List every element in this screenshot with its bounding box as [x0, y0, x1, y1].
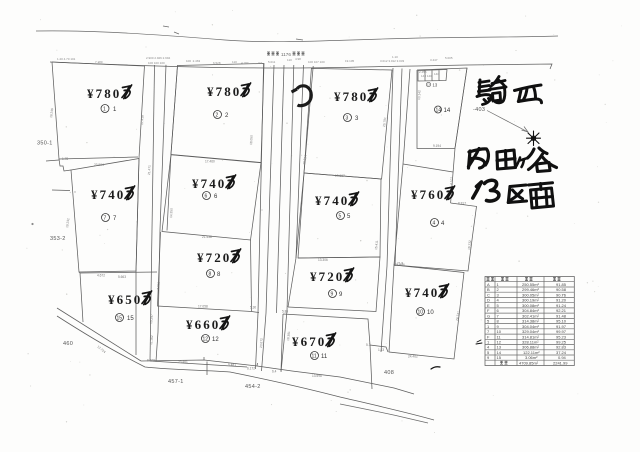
svg-text:13: 13 [433, 82, 438, 87]
svg-text:¥660: ¥660 [186, 317, 220, 332]
svg-text:17.460: 17.460 [205, 160, 215, 164]
svg-text:4.98: 4.98 [295, 57, 301, 61]
svg-text:91.20: 91.20 [556, 298, 567, 303]
svg-text:19.105: 19.105 [345, 59, 355, 63]
svg-text:13.306: 13.306 [318, 258, 328, 262]
svg-text:6: 6 [214, 194, 218, 200]
svg-text:12.724: 12.724 [96, 345, 106, 354]
svg-text:91.48: 91.48 [556, 313, 567, 318]
svg-text:9.194: 9.194 [433, 144, 441, 148]
svg-text:5.1: 5.1 [366, 343, 371, 347]
svg-text:19.594: 19.594 [302, 155, 308, 166]
svg-text:110: 110 [287, 58, 292, 62]
svg-text:5.005: 5.005 [445, 56, 453, 60]
svg-text:3.06m²: 3.06m² [525, 355, 538, 360]
svg-text:350-1: 350-1 [37, 141, 53, 147]
svg-text:4709.85m²: 4709.85m² [519, 361, 539, 366]
svg-text:4.107: 4.107 [449, 176, 454, 185]
svg-text:17.418: 17.418 [140, 115, 145, 125]
svg-text:4: 4 [497, 298, 500, 303]
svg-text:¥780: ¥780 [334, 89, 368, 104]
svg-text:4.493: 4.493 [156, 282, 161, 291]
svg-text:15: 15 [117, 316, 123, 322]
svg-text:92.83: 92.83 [556, 345, 567, 350]
svg-text:23.904: 23.904 [94, 163, 104, 167]
svg-text:13.142: 13.142 [417, 90, 422, 100]
svg-text:18.381: 18.381 [286, 331, 291, 341]
svg-text:¥740: ¥740 [315, 193, 349, 208]
svg-text:4: 4 [487, 345, 490, 350]
svg-text:18.246: 18.246 [49, 108, 54, 118]
svg-text:7: 7 [104, 216, 107, 222]
svg-text:15.411: 15.411 [374, 240, 379, 250]
svg-text:1: 1 [113, 107, 117, 113]
svg-text:14: 14 [436, 108, 442, 114]
svg-text:12: 12 [203, 337, 209, 343]
svg-text:6.528: 6.528 [213, 61, 221, 65]
svg-text:408: 408 [384, 370, 394, 376]
svg-text:9: 9 [331, 292, 334, 298]
svg-text:19.232: 19.232 [467, 240, 472, 250]
svg-text:1: 1 [103, 107, 106, 113]
svg-text:13: 13 [497, 345, 502, 350]
svg-text:¥760: ¥760 [411, 187, 445, 202]
svg-text:¥740: ¥740 [91, 187, 125, 202]
svg-text:13.247: 13.247 [149, 314, 154, 324]
svg-text:12: 12 [212, 337, 219, 343]
svg-text:11: 11 [321, 354, 328, 360]
svg-text:300.19m²: 300.19m² [522, 298, 540, 303]
svg-text:454-2: 454-2 [245, 384, 261, 390]
svg-text:23.672: 23.672 [259, 338, 264, 348]
svg-text:302.41m²: 302.41m² [522, 313, 540, 318]
svg-text:17.058: 17.058 [198, 305, 208, 309]
svg-text:306.88m²: 306.88m² [522, 345, 540, 350]
svg-text:329.04m²: 329.04m² [522, 329, 540, 334]
svg-text:1.20 4.70 101: 1.20 4.70 101 [57, 57, 76, 61]
svg-text:4: 4 [433, 221, 436, 227]
svg-text:9.569: 9.569 [147, 359, 155, 363]
svg-text:14: 14 [444, 108, 451, 114]
svg-text:3: 3 [355, 116, 359, 122]
svg-text:-403: -403 [473, 107, 485, 113]
svg-text:¥740: ¥740 [192, 176, 226, 191]
svg-text:¥720: ¥720 [310, 269, 344, 284]
svg-text:2: 2 [225, 113, 229, 119]
svg-text:21.438: 21.438 [202, 235, 212, 239]
svg-text:5: 5 [339, 214, 342, 220]
svg-text:D: D [487, 298, 490, 303]
svg-text:4.672: 4.672 [97, 274, 105, 278]
svg-text:2: 2 [216, 113, 219, 119]
svg-text:6.172: 6.172 [247, 367, 255, 371]
svg-text:5: 5 [347, 214, 351, 220]
svg-text:3.012 3.012 3.033: 3.012 3.012 3.033 [380, 59, 405, 63]
svg-text:¥740: ¥740 [405, 285, 439, 300]
svg-text:8.817: 8.817 [458, 202, 466, 206]
svg-text:2.900 2.926 2.994: 2.900 2.926 2.994 [146, 56, 171, 60]
svg-text:18.050: 18.050 [249, 135, 254, 145]
svg-text:¥780: ¥780 [207, 84, 241, 99]
svg-text:7: 7 [497, 313, 500, 318]
svg-text:100 107 100: 100 107 100 [308, 60, 325, 64]
svg-text:21.8: 21.8 [397, 262, 403, 266]
svg-text:5.011: 5.011 [268, 60, 276, 64]
svg-text:6: 6 [205, 194, 208, 200]
svg-text:8: 8 [209, 272, 212, 278]
svg-text:11: 11 [312, 354, 317, 360]
svg-text:10: 10 [497, 329, 502, 334]
svg-text:14.350: 14.350 [169, 208, 174, 218]
svg-text:¥780: ¥780 [87, 86, 121, 101]
svg-text:353-2: 353-2 [50, 236, 66, 242]
svg-text:140: 140 [434, 72, 439, 76]
svg-text:9: 9 [487, 355, 490, 360]
svg-text:19.232: 19.232 [65, 218, 70, 228]
svg-text:2241.99: 2241.99 [553, 361, 568, 366]
svg-text:24.462: 24.462 [408, 355, 418, 359]
svg-text:5.86: 5.86 [282, 310, 288, 314]
svg-text:99.97: 99.97 [556, 329, 567, 334]
svg-text:¥720: ¥720 [197, 250, 231, 265]
svg-text:13.598: 13.598 [312, 374, 322, 378]
svg-text:15: 15 [497, 355, 502, 360]
svg-text:10: 10 [427, 310, 434, 316]
svg-text:26.741: 26.741 [455, 311, 461, 322]
svg-text:457-1: 457-1 [168, 379, 184, 385]
svg-text:4: 4 [441, 221, 445, 227]
svg-text:G: G [487, 313, 490, 318]
svg-text:5.481: 5.481 [228, 363, 236, 367]
svg-text:¥670: ¥670 [292, 334, 326, 349]
svg-text:8: 8 [217, 272, 221, 278]
svg-text:5.30: 5.30 [250, 306, 256, 310]
svg-text:3: 3 [346, 116, 349, 122]
svg-text:110: 110 [232, 60, 237, 64]
svg-text:7: 7 [487, 329, 490, 334]
svg-text:140 140: 140 140 [421, 74, 432, 78]
svg-text:11.162: 11.162 [149, 335, 154, 345]
svg-text:0.94: 0.94 [558, 355, 567, 360]
svg-text:460: 460 [63, 341, 73, 347]
svg-text:1176: 1176 [281, 52, 291, 57]
svg-text:7: 7 [113, 216, 117, 222]
svg-text:1.10: 1.10 [392, 55, 398, 59]
svg-text:21.471: 21.471 [147, 165, 152, 175]
svg-text:4.187: 4.187 [241, 61, 249, 65]
svg-text:1.13: 1.13 [378, 348, 384, 352]
svg-text:5.663: 5.663 [118, 275, 126, 279]
svg-text:15: 15 [127, 316, 134, 322]
svg-text:¥650: ¥650 [108, 292, 142, 307]
svg-text:1.78: 1.78 [62, 157, 68, 161]
svg-text:10: 10 [418, 310, 424, 316]
svg-text:9: 9 [339, 292, 343, 298]
svg-text:23.461: 23.461 [178, 360, 188, 364]
svg-text:7.0: 7.0 [258, 61, 263, 65]
svg-text:3.447: 3.447 [430, 58, 438, 62]
svg-text:100 2.463: 100 2.463 [186, 59, 201, 63]
svg-text:100 100 100: 100 100 100 [148, 61, 165, 65]
svg-text:7.180: 7.180 [95, 60, 103, 64]
svg-text:6.4: 6.4 [272, 370, 277, 374]
